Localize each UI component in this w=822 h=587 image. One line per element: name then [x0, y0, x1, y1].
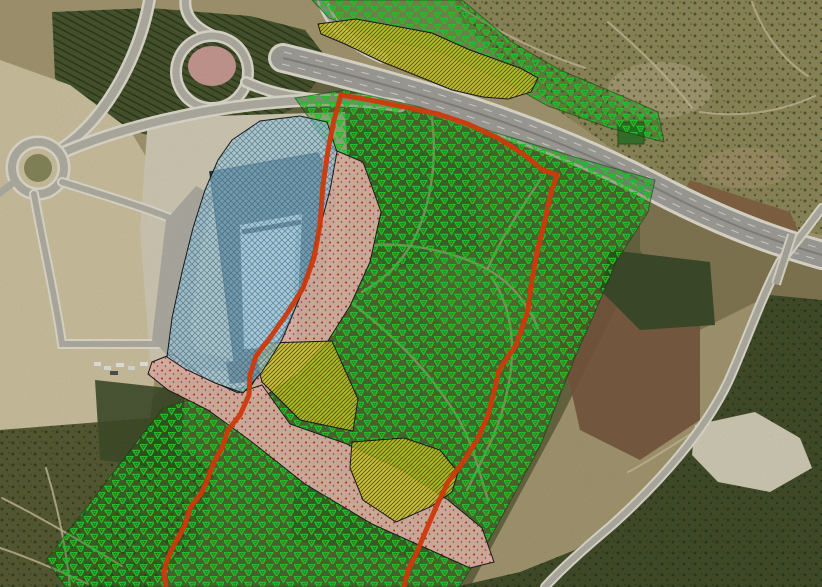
- photo-noise: [0, 0, 822, 587]
- map-viewport[interactable]: [0, 0, 822, 587]
- map-canvas[interactable]: [0, 0, 822, 587]
